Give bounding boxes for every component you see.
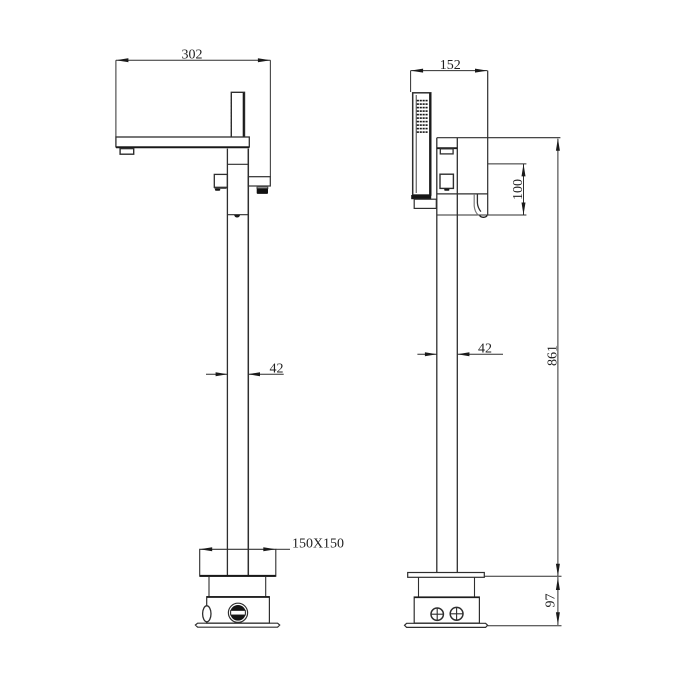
svg-text:97: 97: [543, 594, 558, 608]
svg-text:150X150: 150X150: [292, 537, 344, 552]
svg-text:302: 302: [182, 48, 203, 63]
svg-text:861: 861: [545, 345, 560, 366]
svg-text:100: 100: [511, 179, 526, 200]
svg-text:152: 152: [440, 58, 461, 73]
svg-text:42: 42: [270, 361, 284, 376]
svg-text:42: 42: [478, 341, 492, 356]
